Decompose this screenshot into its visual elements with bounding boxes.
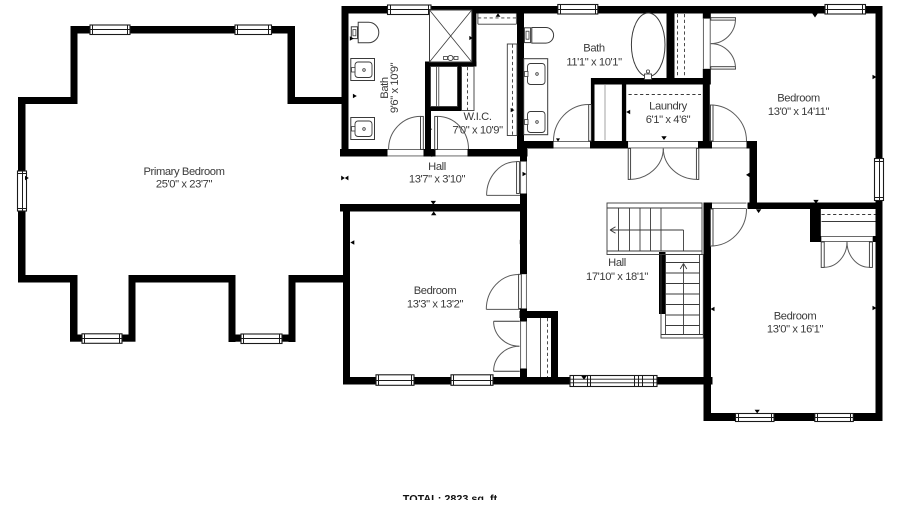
svg-text:Bedroom: Bedroom bbox=[777, 92, 820, 104]
svg-text:6'1" x 4'6": 6'1" x 4'6" bbox=[646, 114, 691, 126]
svg-text:13'7" x 3'10": 13'7" x 3'10" bbox=[409, 174, 466, 186]
svg-text:Primary Bedroom: Primary Bedroom bbox=[143, 166, 224, 178]
svg-text:Bath: Bath bbox=[583, 42, 605, 54]
svg-text:9'6" x 10'9": 9'6" x 10'9" bbox=[389, 62, 401, 113]
svg-text:11'1" x 10'1": 11'1" x 10'1" bbox=[566, 56, 622, 68]
svg-text:Hall: Hall bbox=[428, 161, 446, 173]
svg-text:Bedroom: Bedroom bbox=[774, 311, 817, 323]
svg-text:25'0" x 23'7": 25'0" x 23'7" bbox=[156, 179, 213, 191]
svg-text:7'0" x 10'9": 7'0" x 10'9" bbox=[452, 125, 503, 137]
svg-text:W.I.C.: W.I.C. bbox=[463, 111, 491, 123]
svg-text:13'0" x 14'11": 13'0" x 14'11" bbox=[768, 106, 830, 118]
svg-text:Bedroom: Bedroom bbox=[414, 285, 457, 297]
svg-text:Laundry: Laundry bbox=[649, 101, 687, 113]
svg-text:Hall: Hall bbox=[608, 257, 626, 269]
svg-text:TOTAL: 2823 sq. ft: TOTAL: 2823 sq. ft bbox=[403, 494, 498, 501]
svg-text:13'3" x 13'2": 13'3" x 13'2" bbox=[407, 298, 464, 310]
svg-text:17'10" x 18'1": 17'10" x 18'1" bbox=[586, 271, 648, 283]
svg-text:13'0" x 16'1": 13'0" x 16'1" bbox=[767, 324, 824, 336]
